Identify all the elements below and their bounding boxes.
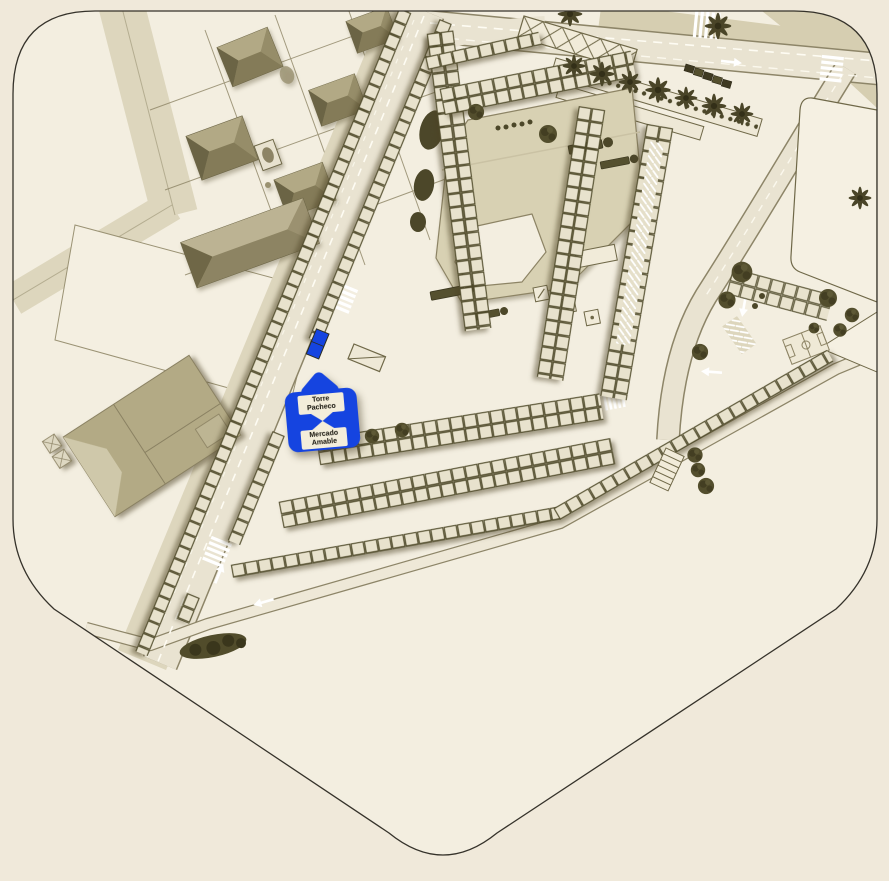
tree-icon — [698, 478, 714, 494]
tree-icon — [691, 463, 705, 477]
palm-icon — [849, 187, 872, 210]
tree-icon — [833, 323, 847, 337]
palm-icon — [563, 55, 586, 78]
palm-icon — [619, 71, 642, 94]
location-marker[interactable]: Torre Pacheco Mercado Amable — [282, 369, 361, 459]
tree-icon — [365, 429, 379, 443]
palm-icon — [675, 87, 698, 110]
map-canvas — [0, 0, 889, 881]
tree-icon — [468, 104, 484, 120]
tree-icon — [809, 323, 820, 334]
tree-icon — [539, 125, 557, 143]
tree-icon — [692, 344, 708, 360]
tree-icon — [819, 289, 837, 307]
kiosk-box — [533, 285, 549, 301]
tree-icon — [845, 308, 859, 322]
palm-icon — [702, 94, 727, 119]
palm-icon — [705, 13, 732, 40]
palm-icon — [731, 103, 754, 126]
kiosk-box — [584, 309, 600, 325]
tree-icon — [395, 423, 409, 437]
tree-icon — [687, 447, 702, 462]
palm-icon — [590, 62, 615, 87]
tree-icon — [732, 262, 753, 283]
palm-icon — [645, 77, 671, 103]
tree-icon — [718, 291, 735, 308]
illustrated-site-map: Torre Pacheco Mercado Amable — [0, 0, 889, 881]
